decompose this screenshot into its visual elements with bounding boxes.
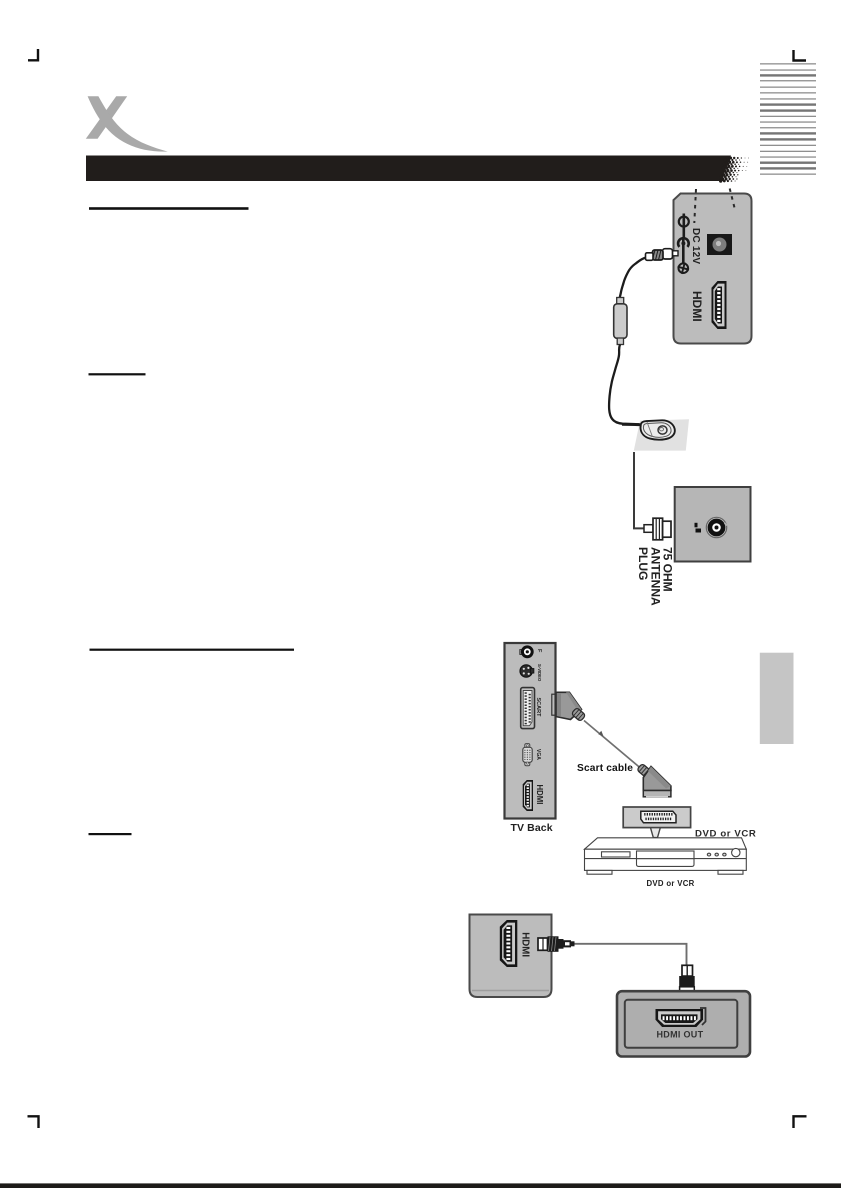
svg-text:HDMI OUT: HDMI OUT	[657, 1030, 704, 1040]
svg-text:VGA: VGA	[535, 749, 541, 760]
svg-text:HDMI: HDMI	[519, 932, 530, 957]
svg-text:PLUG: PLUG	[636, 547, 650, 580]
svg-text:HDMI: HDMI	[535, 785, 544, 805]
svg-text:HDMI: HDMI	[690, 291, 704, 322]
svg-text:DC 12V: DC 12V	[690, 228, 701, 264]
svg-text:SCART: SCART	[535, 698, 541, 718]
svg-text:Scart cable: Scart cable	[577, 763, 633, 774]
svg-text:DVD or VCR: DVD or VCR	[647, 879, 695, 888]
svg-text:S-VIDEO: S-VIDEO	[537, 664, 542, 682]
svg-text:TV Back: TV Back	[511, 822, 553, 834]
